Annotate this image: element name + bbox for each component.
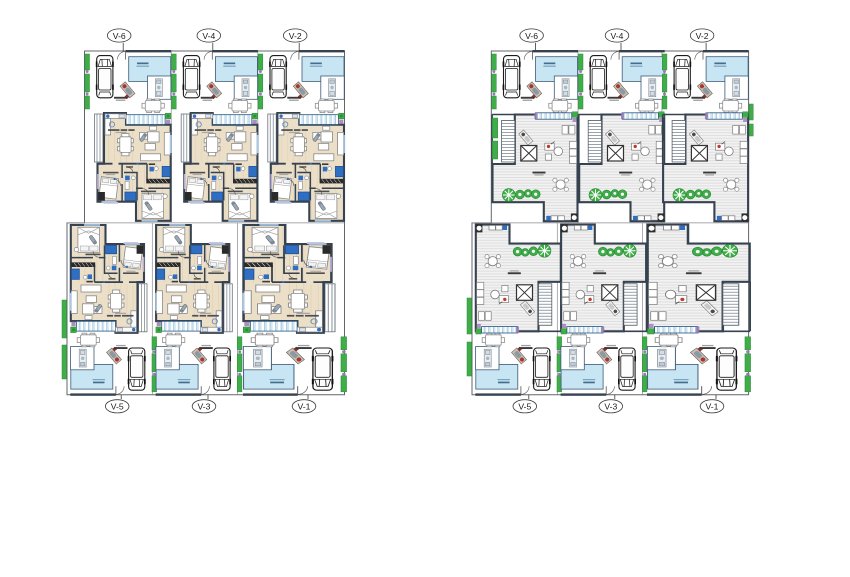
svg-text:V-1: V-1: [298, 402, 311, 412]
svg-text:V-4: V-4: [611, 31, 624, 41]
svg-text:V-1: V-1: [706, 402, 719, 412]
svg-text:V-6: V-6: [113, 31, 126, 41]
svg-text:V-2: V-2: [289, 31, 302, 41]
svg-text:V-3: V-3: [604, 402, 617, 412]
svg-text:V-6: V-6: [525, 31, 538, 41]
svg-text:V-4: V-4: [202, 31, 215, 41]
svg-text:V-5: V-5: [111, 402, 124, 412]
svg-text:V-5: V-5: [518, 402, 531, 412]
svg-text:V-2: V-2: [696, 31, 709, 41]
svg-text:V-3: V-3: [198, 402, 211, 412]
